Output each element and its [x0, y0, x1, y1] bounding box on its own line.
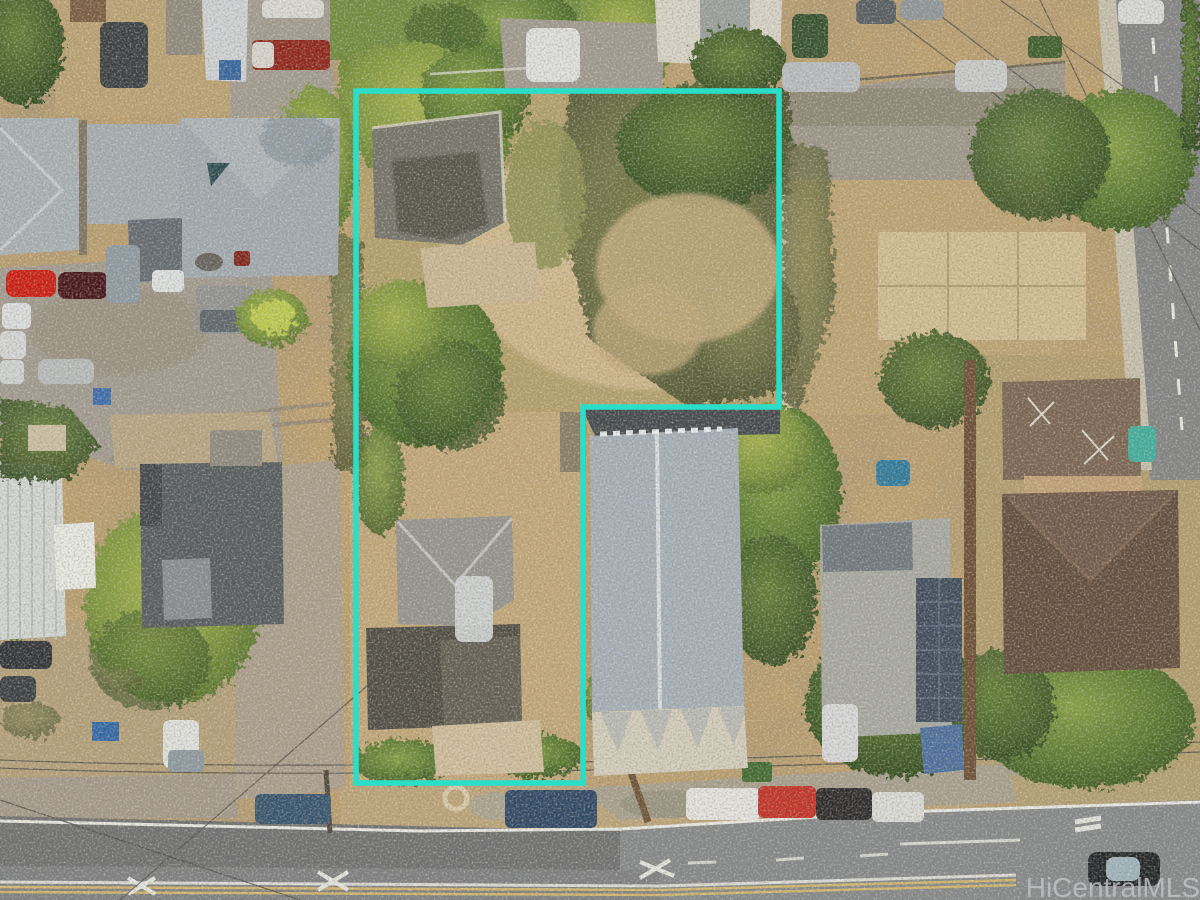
svg-text:HiCentralMLS: HiCentralMLS — [1026, 872, 1200, 900]
